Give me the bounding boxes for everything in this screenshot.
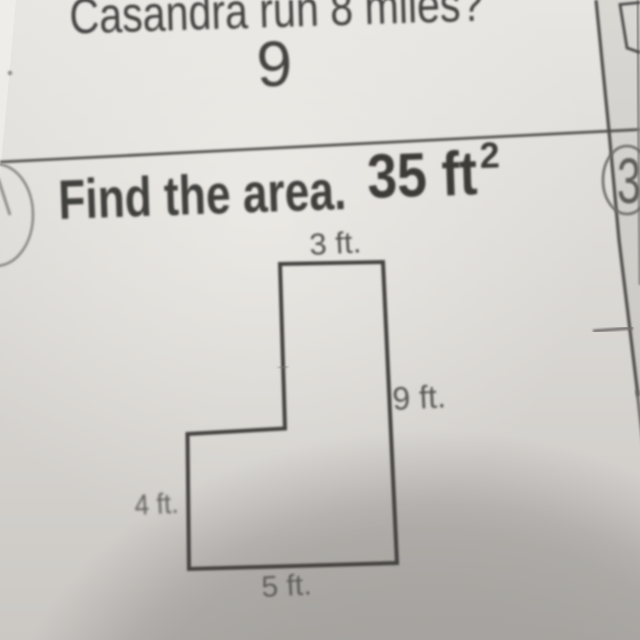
svg-text:3: 3 bbox=[617, 145, 640, 217]
svg-text:5 ft.: 5 ft. bbox=[261, 568, 313, 604]
svg-text:35 ft: 35 ft bbox=[366, 139, 478, 212]
svg-text:4 ft.: 4 ft. bbox=[134, 488, 180, 522]
svg-text:Find the area.: Find the area. bbox=[57, 158, 347, 231]
svg-text:9: 9 bbox=[255, 27, 293, 100]
svg-text:3 ft.: 3 ft. bbox=[309, 224, 362, 262]
svg-text:9 ft.: 9 ft. bbox=[391, 378, 446, 417]
svg-text:2: 2 bbox=[479, 134, 500, 176]
